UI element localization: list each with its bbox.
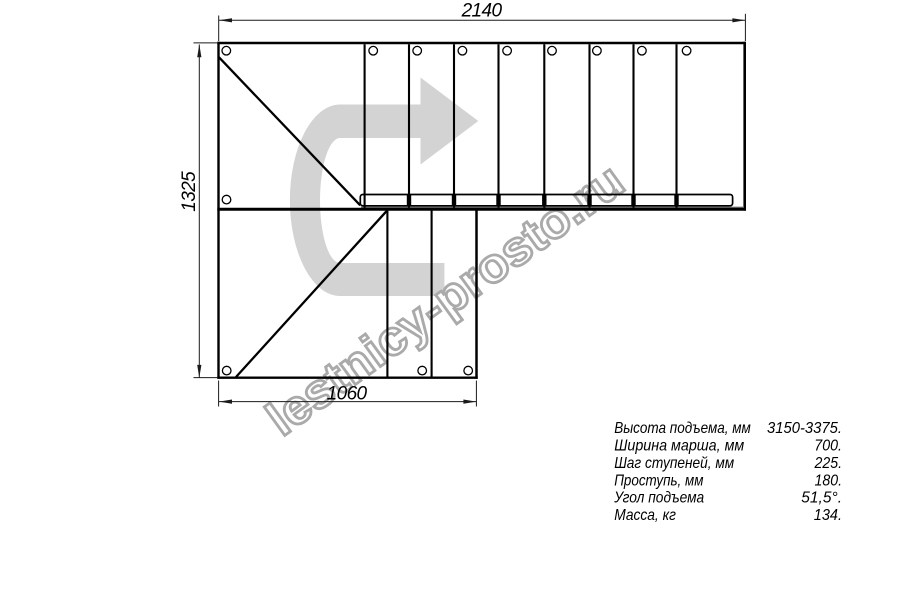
svg-text:Масса, кг: Масса, кг xyxy=(614,507,676,524)
svg-text:1325: 1325 xyxy=(179,171,200,212)
svg-text:Шаг ступеней, мм: Шаг ступеней, мм xyxy=(614,455,734,472)
svg-text:51,5°.: 51,5°. xyxy=(801,490,842,507)
svg-text:3150-3375.: 3150-3375. xyxy=(767,420,842,437)
svg-text:134.: 134. xyxy=(814,507,842,524)
svg-text:700.: 700. xyxy=(814,438,842,455)
svg-text:Ширина марша, мм: Ширина марша, мм xyxy=(614,438,744,455)
svg-text:180.: 180. xyxy=(815,472,843,489)
svg-text:225.: 225. xyxy=(814,455,842,472)
svg-text:1060: 1060 xyxy=(327,383,368,404)
svg-text:Проступь, мм: Проступь, мм xyxy=(614,472,703,489)
svg-text:Угол подъема: Угол подъема xyxy=(613,490,704,507)
svg-text:Высота подъема, мм: Высота подъема, мм xyxy=(614,420,751,437)
svg-text:2140: 2140 xyxy=(461,0,503,21)
